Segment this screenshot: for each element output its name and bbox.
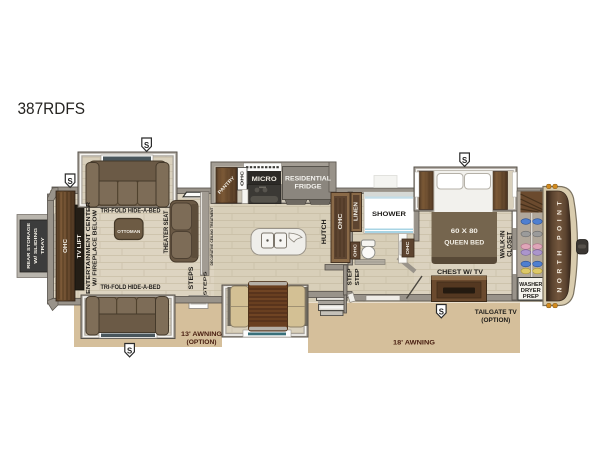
svg-text:RESIDENTIAL: RESIDENTIAL xyxy=(285,176,331,183)
svg-text:NORTH POINT: NORTH POINT xyxy=(557,200,564,293)
svg-text:CHEST W/ TV: CHEST W/ TV xyxy=(437,269,484,276)
svg-text:OHC: OHC xyxy=(63,239,69,253)
svg-text:DECORATIVE CEILING TREATMENT: DECORATIVE CEILING TREATMENT xyxy=(210,207,214,266)
svg-text:W/ SLIDING: W/ SLIDING xyxy=(33,228,39,264)
svg-text:CLOSET: CLOSET xyxy=(507,232,513,257)
svg-text:STEPS: STEPS xyxy=(189,267,195,290)
svg-text:OHC: OHC xyxy=(352,244,357,257)
svg-text:REAR STORAGE: REAR STORAGE xyxy=(26,222,32,269)
svg-text:QUEEN BED: QUEEN BED xyxy=(444,240,484,247)
svg-text:OHC: OHC xyxy=(405,242,410,255)
svg-text:OTTOMAN: OTTOMAN xyxy=(117,229,141,234)
svg-text:(OPTION): (OPTION) xyxy=(187,339,217,346)
svg-text:OHC: OHC xyxy=(338,213,344,230)
svg-text:60 X 80: 60 X 80 xyxy=(451,228,478,235)
svg-text:18' AWNING: 18' AWNING xyxy=(393,340,435,347)
svg-text:TAILGATE TV: TAILGATE TV xyxy=(475,309,518,316)
svg-text:TRI-FOLD HIDE-A-BED: TRI-FOLD HIDE-A-BED xyxy=(101,208,161,215)
svg-text:TV LIFT: TV LIFT xyxy=(77,234,83,259)
svg-text:THEATER SEAT: THEATER SEAT xyxy=(163,210,170,253)
svg-text:387RDFS: 387RDFS xyxy=(18,99,86,118)
svg-text:LINEN: LINEN xyxy=(354,202,360,221)
svg-text:MICRO: MICRO xyxy=(252,176,277,183)
svg-text:(OPTION): (OPTION) xyxy=(481,317,510,324)
svg-text:OHC: OHC xyxy=(239,170,244,186)
svg-text:TRI-FOLD HIDE-A-BED: TRI-FOLD HIDE-A-BED xyxy=(101,284,161,291)
svg-text:FRIDGE: FRIDGE xyxy=(295,184,323,191)
svg-text:TRAY: TRAY xyxy=(40,236,46,254)
svg-text:PREP: PREP xyxy=(523,294,540,300)
svg-text:SHOWER: SHOWER xyxy=(372,211,406,218)
svg-text:13' AWNING: 13' AWNING xyxy=(181,331,222,338)
svg-text:WALK-IN: WALK-IN xyxy=(500,230,506,258)
svg-text:STEP: STEP xyxy=(355,268,361,285)
svg-text:ENTERTAINMENT CENTER: ENTERTAINMENT CENTER xyxy=(86,202,92,294)
svg-text:STEP: STEP xyxy=(347,268,353,285)
svg-text:W/ FIREPLACE BELOW: W/ FIREPLACE BELOW xyxy=(92,209,98,286)
svg-text:STEPS: STEPS xyxy=(202,272,207,296)
svg-text:HUTCH: HUTCH xyxy=(321,219,328,245)
